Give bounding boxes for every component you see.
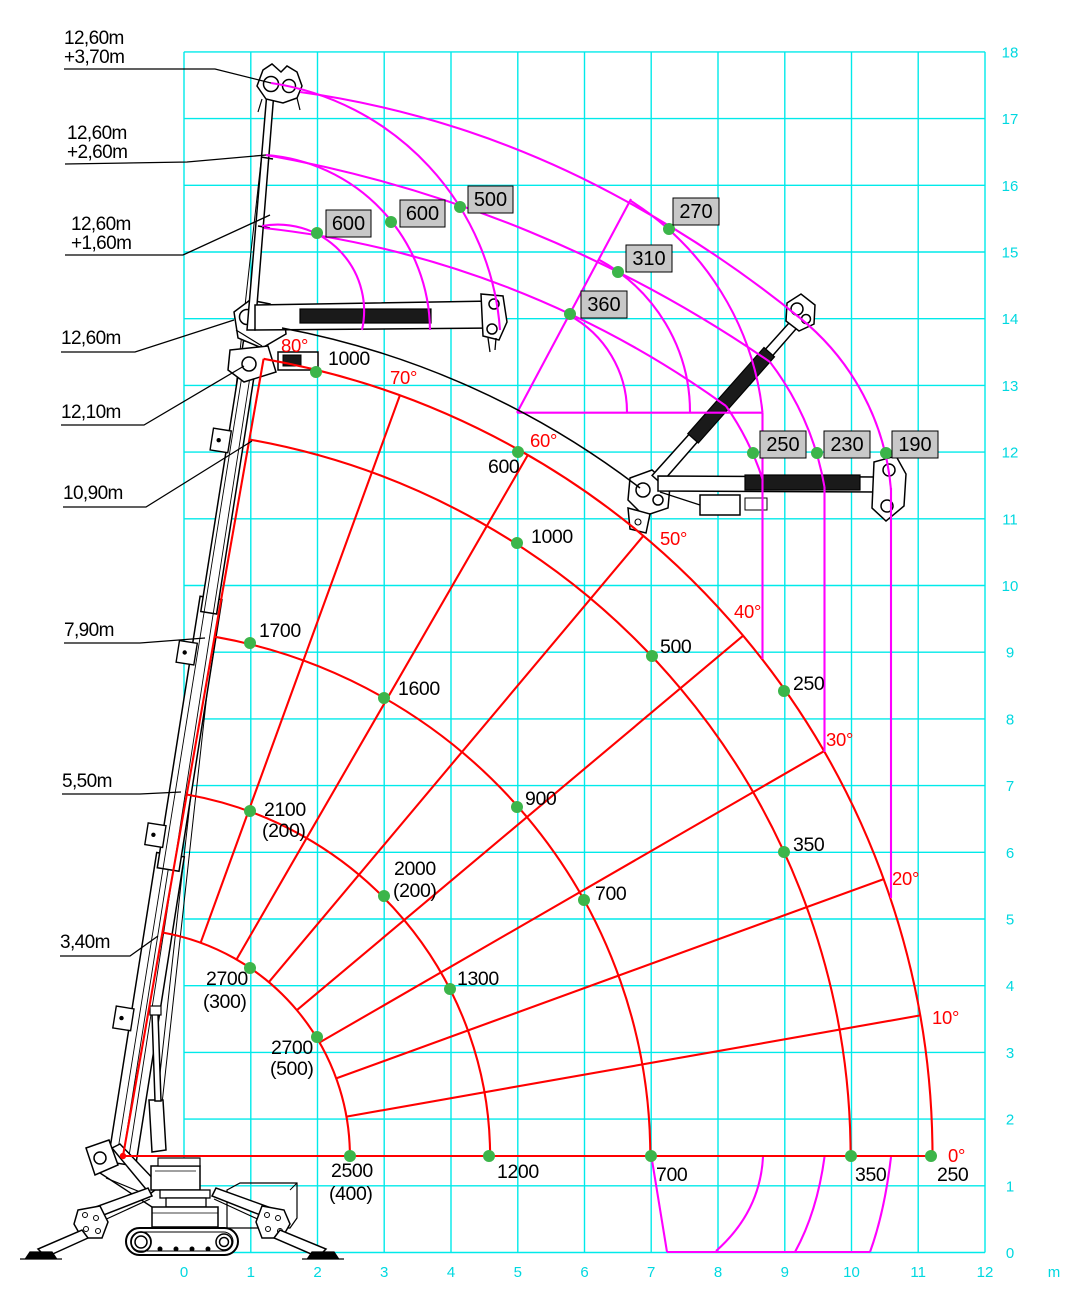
svg-text:3,40m: 3,40m [60, 932, 110, 953]
svg-text:70°: 70° [390, 367, 417, 388]
svg-text:10: 10 [1002, 578, 1019, 595]
svg-text:12,60m: 12,60m [67, 123, 127, 144]
svg-text:13: 13 [1002, 378, 1019, 395]
svg-text:12,10m: 12,10m [61, 402, 121, 423]
svg-text:8: 8 [714, 1264, 722, 1281]
svg-text:2700: 2700 [206, 968, 248, 990]
svg-text:11: 11 [1002, 511, 1018, 528]
svg-text:10,90m: 10,90m [63, 483, 123, 504]
svg-text:350: 350 [793, 834, 825, 856]
svg-text:5,50m: 5,50m [62, 771, 112, 792]
svg-text:1700: 1700 [259, 620, 301, 642]
svg-text:600: 600 [332, 213, 365, 235]
svg-text:1200: 1200 [497, 1161, 539, 1183]
svg-text:17: 17 [1002, 111, 1019, 128]
svg-text:+3,70m: +3,70m [64, 47, 124, 68]
svg-text:350: 350 [855, 1164, 887, 1186]
svg-text:2: 2 [313, 1264, 321, 1281]
svg-text:2100: 2100 [264, 799, 306, 821]
svg-text:360: 360 [587, 294, 620, 316]
svg-text:5: 5 [1006, 912, 1014, 929]
svg-text:4: 4 [1006, 978, 1014, 995]
svg-text:8: 8 [1006, 711, 1014, 728]
svg-text:12,60m: 12,60m [71, 214, 131, 235]
svg-text:250: 250 [937, 1164, 969, 1186]
svg-text:250: 250 [793, 673, 825, 695]
svg-text:m: m [1048, 1264, 1061, 1281]
svg-text:(200): (200) [262, 820, 306, 842]
svg-text:0°: 0° [948, 1145, 965, 1166]
svg-text:2000: 2000 [394, 858, 436, 880]
svg-text:9: 9 [781, 1264, 789, 1281]
svg-text:1: 1 [1006, 1178, 1014, 1195]
svg-text:600: 600 [406, 203, 439, 225]
svg-text:230: 230 [830, 434, 863, 456]
svg-text:500: 500 [660, 636, 692, 658]
svg-text:1000: 1000 [328, 348, 370, 370]
svg-text:11: 11 [910, 1264, 926, 1281]
svg-text:600: 600 [488, 456, 520, 478]
svg-text:+2,60m: +2,60m [67, 142, 127, 163]
svg-text:3: 3 [380, 1264, 388, 1281]
svg-text:40°: 40° [734, 601, 761, 622]
svg-text:5: 5 [514, 1264, 522, 1281]
svg-text:80°: 80° [281, 335, 308, 356]
svg-text:270: 270 [679, 201, 712, 223]
svg-text:14: 14 [1002, 311, 1019, 328]
svg-text:16: 16 [1002, 178, 1019, 195]
svg-text:1000: 1000 [531, 526, 573, 548]
svg-text:7,90m: 7,90m [64, 620, 114, 641]
svg-text:190: 190 [898, 434, 931, 456]
svg-text:6: 6 [1006, 845, 1014, 862]
svg-text:7: 7 [1006, 778, 1014, 795]
svg-text:60°: 60° [530, 430, 557, 451]
svg-text:7: 7 [647, 1264, 655, 1281]
svg-text:6: 6 [580, 1264, 588, 1281]
svg-text:500: 500 [474, 189, 507, 211]
svg-text:(300): (300) [203, 991, 247, 1013]
svg-text:9: 9 [1006, 645, 1014, 662]
svg-text:900: 900 [525, 788, 557, 810]
svg-text:12: 12 [977, 1264, 994, 1281]
svg-text:700: 700 [595, 883, 627, 905]
svg-text:30°: 30° [826, 729, 853, 750]
svg-text:2700: 2700 [271, 1037, 313, 1059]
svg-text:(400): (400) [329, 1183, 373, 1205]
svg-text:10: 10 [843, 1264, 860, 1281]
svg-text:12: 12 [1002, 445, 1019, 462]
svg-text:+1,60m: +1,60m [71, 233, 131, 254]
svg-text:(200): (200) [393, 880, 437, 902]
svg-text:4: 4 [447, 1264, 455, 1281]
svg-text:15: 15 [1002, 245, 1019, 262]
svg-text:(500): (500) [270, 1058, 314, 1080]
svg-text:3: 3 [1006, 1045, 1014, 1062]
svg-text:0: 0 [1006, 1245, 1014, 1262]
svg-text:12,60m: 12,60m [64, 28, 124, 49]
svg-text:0: 0 [180, 1264, 188, 1281]
svg-text:2500: 2500 [331, 1160, 373, 1182]
svg-text:2: 2 [1006, 1112, 1014, 1129]
svg-text:10°: 10° [932, 1007, 959, 1028]
svg-text:1: 1 [247, 1264, 255, 1281]
svg-text:18: 18 [1002, 44, 1019, 61]
svg-text:700: 700 [656, 1164, 688, 1186]
svg-text:20°: 20° [892, 868, 919, 889]
svg-text:50°: 50° [660, 528, 687, 549]
svg-text:12,60m: 12,60m [61, 328, 121, 349]
svg-text:1300: 1300 [457, 968, 499, 990]
svg-text:1600: 1600 [398, 678, 440, 700]
svg-text:310: 310 [632, 248, 665, 270]
svg-text:250: 250 [766, 434, 799, 456]
